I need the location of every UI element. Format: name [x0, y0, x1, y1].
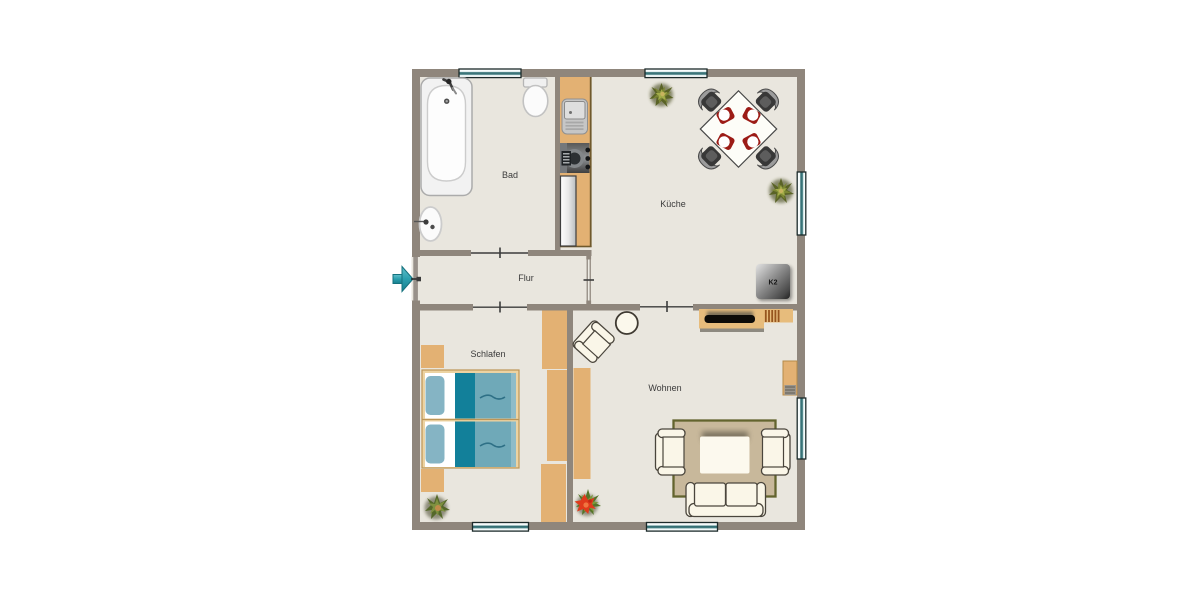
svg-text:Küche: Küche	[660, 199, 686, 209]
svg-text:Wohnen: Wohnen	[648, 383, 681, 393]
svg-text:Flur: Flur	[518, 273, 534, 283]
svg-text:Schlafen: Schlafen	[470, 349, 505, 359]
svg-text:Bad: Bad	[502, 170, 518, 180]
svg-text:K2: K2	[769, 280, 778, 287]
